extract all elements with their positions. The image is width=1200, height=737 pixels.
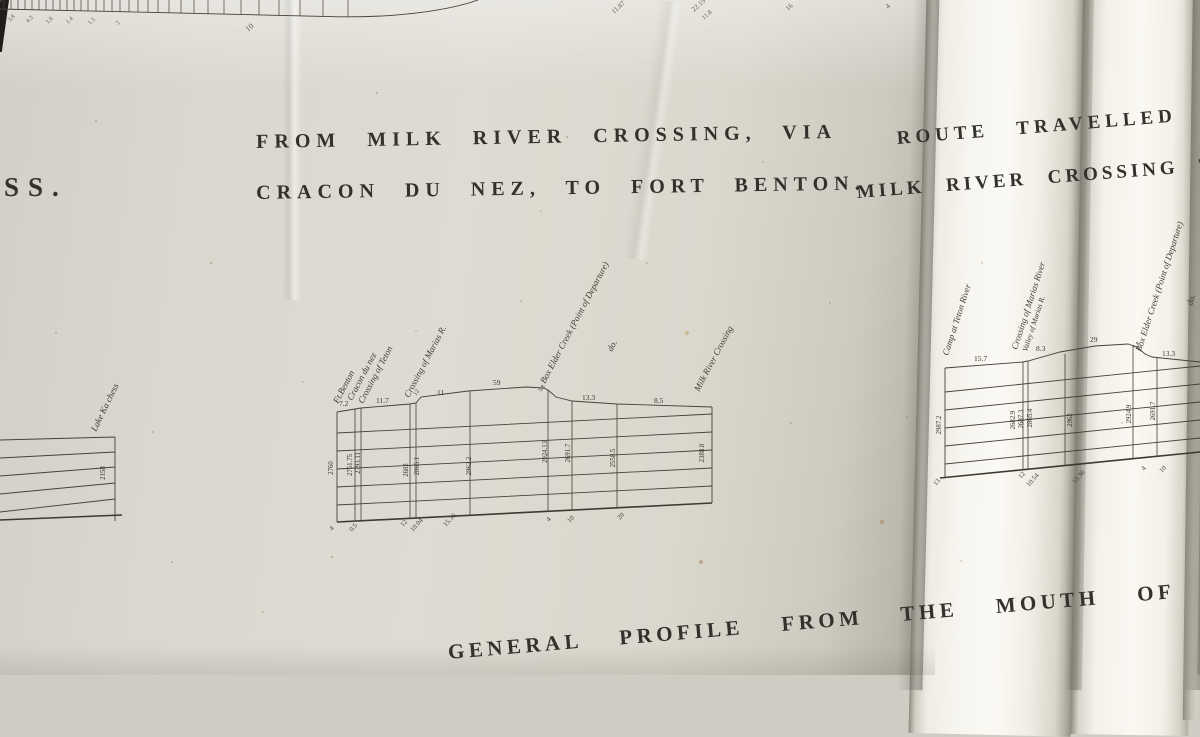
- axis-mark: 10.04: [409, 517, 425, 533]
- ruler-number: 16: [784, 2, 795, 13]
- elevation-label: 2987.2: [936, 415, 943, 434]
- axis-mark: 0.5: [348, 522, 359, 533]
- ruler-number: 1.4: [65, 16, 75, 26]
- ruler-number: 11.8: [701, 9, 714, 22]
- distance-label: 8.5: [654, 396, 664, 405]
- axis-mark: 4: [545, 516, 553, 524]
- station-label: Lake Ka chess: [88, 381, 120, 433]
- ruler-number: 4.3: [25, 15, 35, 25]
- elevation-label: 2865.4: [1027, 408, 1034, 427]
- main-profile-chart: Ft.Benton Cracon du nez Crossing of Teto…: [328, 260, 735, 533]
- elevation-label: 2924.9: [1126, 404, 1133, 423]
- distance-label: 7.2: [339, 399, 349, 408]
- axis-mark: 4: [328, 525, 336, 533]
- distance-label: 11: [437, 388, 444, 397]
- distance-label: 29: [1090, 335, 1098, 344]
- left-profile-fragment: Lake Ka chess 2158: [0, 381, 122, 521]
- distance-label: 13.3: [582, 393, 595, 402]
- elevation-label: 2962.2: [466, 456, 473, 475]
- distance-label: 13.3: [1162, 349, 1175, 358]
- ruler-number: 3.8: [7, 14, 17, 24]
- left-title-fragment: SS.: [4, 172, 68, 203]
- ruler-number: 1.8: [45, 16, 55, 26]
- elevation-label: 2793.11: [355, 452, 362, 474]
- distance-label: 59: [493, 378, 501, 387]
- axis-mark: 12: [399, 518, 409, 528]
- elevation-label: 2691.7: [565, 443, 572, 462]
- ruler-number: 1.3: [87, 17, 97, 27]
- axis-mark: 10.54: [1025, 472, 1041, 488]
- ruler-number: 11.87: [610, 0, 627, 15]
- distance-label: 15.7: [974, 354, 987, 363]
- ruler-number: 2: [115, 20, 121, 26]
- station-label: Camp at Teton River: [940, 282, 973, 356]
- elevation-label: 2751.75: [347, 453, 354, 476]
- elevation-label: 2760: [328, 461, 335, 475]
- axis-mark: 4: [1140, 465, 1148, 473]
- station-label: Milk River Crossing: [691, 324, 735, 394]
- axis-mark: 20: [616, 511, 626, 521]
- photographed-map-sheet: { "titles": { "left_partial": "SS.", "ma…: [0, 0, 1200, 675]
- elevation-label: 2924.13: [542, 440, 549, 463]
- elevation-label: 2691.7: [1150, 401, 1157, 420]
- paper-speckles: [0, 0, 2, 2]
- station-label: Box Elder Creek (Point of Departure): [1133, 220, 1185, 352]
- elevation-label: 2865.1: [414, 457, 421, 476]
- ruler-number: 10: [244, 21, 256, 33]
- axis-mark: 15.36: [442, 512, 458, 528]
- axis-mark: 10: [1158, 464, 1168, 474]
- station-label: Box Elder Creek (Point of Departure): [538, 260, 611, 385]
- elevation-label: 2682.9: [1010, 410, 1017, 429]
- axis-mark: 12: [1017, 470, 1027, 480]
- elevation-label: 2687.3: [1018, 409, 1025, 428]
- elevation-label: 2388.8: [699, 443, 706, 462]
- elevation-label: 2682: [403, 463, 410, 477]
- station-label: do.: [605, 338, 619, 353]
- ruler-number: 4: [884, 2, 892, 11]
- right-profile-fragment: Camp at Teton River Crossing of Marias R…: [932, 220, 1200, 488]
- elevation-label: 2558.5: [610, 448, 617, 467]
- elevation-label: 2158: [100, 466, 107, 480]
- fold-shadow-3: [1183, 0, 1200, 690]
- distance-label: 11.7: [376, 396, 389, 405]
- axis-mark: 10: [566, 514, 576, 524]
- profile-line-art: 3.8 4.3 1.8 1.4 1.3 2 10 11.87 22.15 11.…: [0, 0, 1200, 675]
- top-ruler: 3.8 4.3 1.8 1.4 1.3 2 10 11.87 22.15 11.…: [0, 0, 892, 34]
- distance-label: 8.3: [1036, 344, 1046, 353]
